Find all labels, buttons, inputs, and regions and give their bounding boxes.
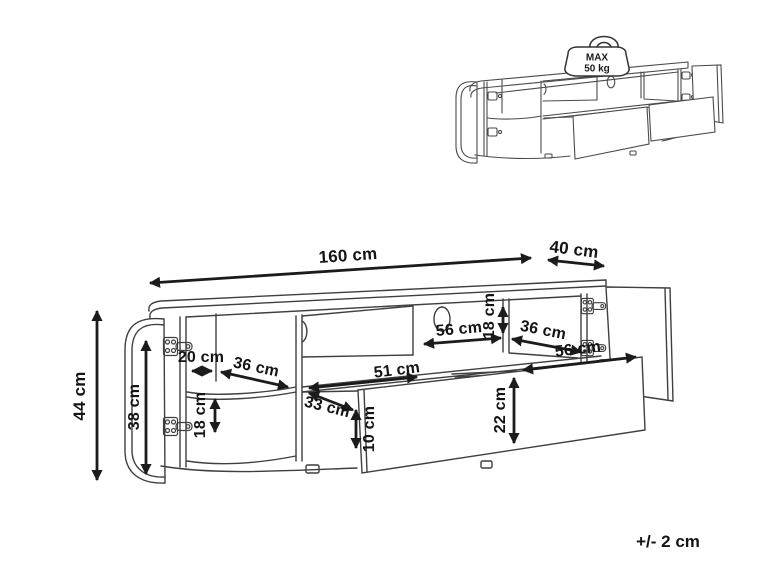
dim-left-compartment-width: 20 cm [178,349,224,367]
dim-center-width: 33 cm [302,394,351,423]
dim-drawer-front-height: 22 cm [492,387,510,433]
technical-drawing-page: 160 cm 40 cm 44 cm 38 cm 20 cm 36 cm 18 … [0,0,760,570]
dimension-labels: 160 cm 40 cm 44 cm 38 cm 20 cm 36 cm 18 … [0,0,760,570]
dim-left-shelf-depth: 36 cm [231,354,280,381]
dim-total-width: 160 cm [318,244,378,268]
max-load-line2: 50 kg [584,64,610,75]
dim-left-lower-height: 18 cm [192,392,210,438]
max-load-line1: MAX [586,53,608,64]
dim-open-shelf-height: 18 cm [481,293,499,339]
dim-drawer-inner-width: 51 cm [373,359,421,383]
dim-open-shelf-width: 56 cm [435,319,483,341]
tolerance-note: +/- 2 cm [636,532,700,552]
dim-drawer-clearance: 10 cm [361,406,379,452]
dim-depth: 40 cm [548,237,599,263]
dim-door-height: 38 cm [126,384,144,430]
dim-right-shelf-depth: 36 cm [519,318,568,345]
dim-total-height: 44 cm [70,371,90,420]
